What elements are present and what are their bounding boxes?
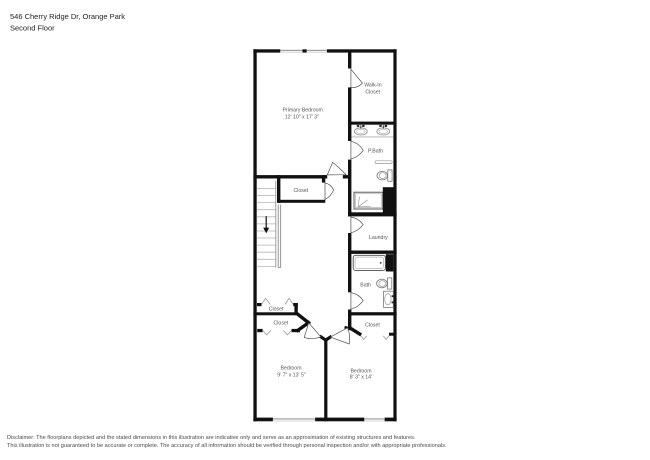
svg-text:12' 10" x 17' 3": 12' 10" x 17' 3" bbox=[285, 115, 319, 121]
svg-text:Closet: Closet bbox=[365, 89, 380, 95]
svg-text:Bedroom: Bedroom bbox=[350, 368, 371, 374]
svg-text:Second Floor: Second Floor bbox=[10, 23, 55, 32]
svg-text:Closet: Closet bbox=[365, 322, 380, 328]
svg-text:546 Cherry Ridge Dr, Orange Pa: 546 Cherry Ridge Dr, Orange Park bbox=[10, 12, 125, 21]
svg-text:Disclaimer: The floorplans dep: Disclaimer: The floorplans depicted and … bbox=[7, 435, 416, 441]
svg-text:9' 7" x 13' 5": 9' 7" x 13' 5" bbox=[277, 373, 306, 379]
svg-text:Walk-In: Walk-In bbox=[364, 82, 382, 88]
svg-text:Closet: Closet bbox=[274, 320, 289, 326]
svg-text:Primary Bedroom: Primary Bedroom bbox=[283, 108, 323, 114]
svg-text:This illustration is not guara: This illustration is not guaranteed to b… bbox=[7, 443, 447, 449]
svg-text:Bath: Bath bbox=[360, 283, 371, 289]
svg-text:Bedroom: Bedroom bbox=[280, 366, 301, 372]
svg-text:Closet: Closet bbox=[269, 307, 284, 313]
svg-text:Closet: Closet bbox=[293, 188, 308, 194]
svg-text:8' 3" x 14': 8' 3" x 14' bbox=[350, 374, 372, 380]
svg-text:P.Bath: P.Bath bbox=[368, 148, 383, 154]
svg-text:Laundry: Laundry bbox=[369, 235, 388, 241]
